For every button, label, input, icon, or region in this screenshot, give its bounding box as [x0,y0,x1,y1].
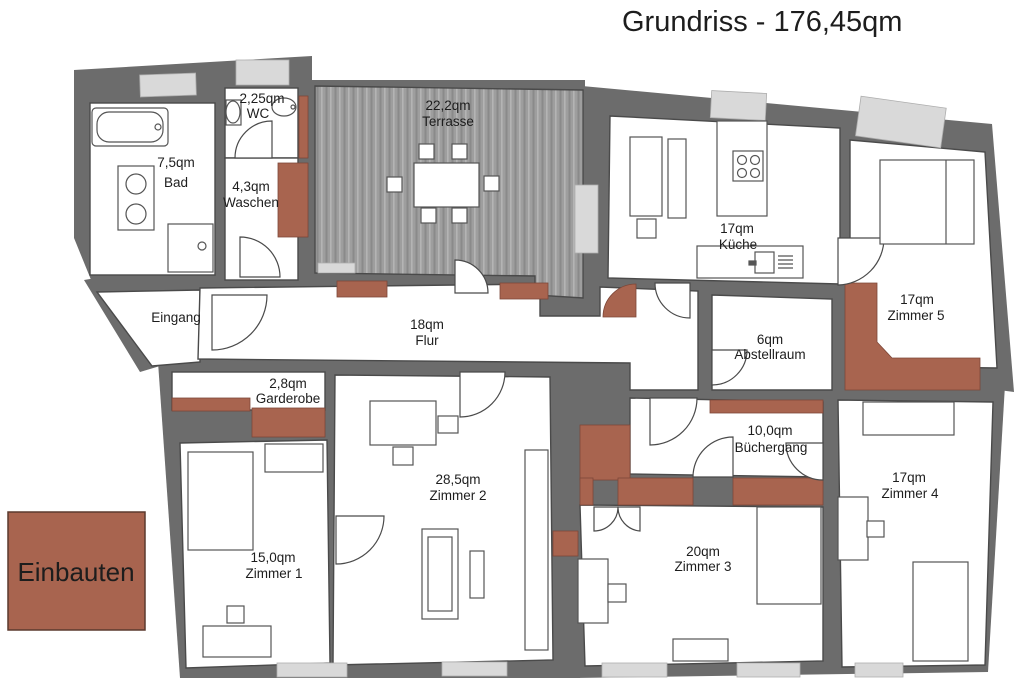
label-wc-name: WC [247,106,270,121]
label-zimmer5-area: 17qm [900,292,934,307]
einbauten-zimmer3-band-c [733,478,823,505]
label-terrasse-name: Terrasse [422,114,474,129]
terrace-chair [419,144,434,159]
label-zimmer1-name: Zimmer 1 [246,566,303,581]
label-wc-area: 2,25qm [239,91,284,106]
zimmer1-chair [227,606,244,623]
label-zimmer3-name: Zimmer 3 [675,559,732,574]
window [277,663,347,677]
window [575,185,598,253]
room-eingang-floor [97,290,200,366]
page-title: Grundriss - 176,45qm [622,6,902,38]
bathtub-faucet [155,124,161,130]
zimmer2-bench [470,551,484,598]
window [140,73,197,97]
einbauten-garderobe-2 [252,408,325,437]
zimmer1-bed [188,452,253,550]
terrace-chair [452,144,467,159]
einbauten-flur-left [337,281,387,297]
zimmer2-wall-cabinet [525,450,548,650]
kueche-faucet [749,261,756,265]
label-bad-name: Bad [164,175,188,190]
window [602,663,667,677]
label-bad-area: 7,5qm [157,155,195,170]
kueche-sink [755,252,774,273]
terrace-table [414,163,479,207]
zimmer4-cabinet [838,497,868,560]
label-zimmer1-area: 15,0qm [250,550,295,565]
label-buechergang-name: Büchergang [735,440,808,455]
kueche-burner [751,156,760,165]
zimmer4-sideboard [863,402,954,435]
window [318,263,355,273]
einbauten-garderobe-1 [172,398,250,411]
einbauten-flur-mid [500,283,548,299]
terrace-chair [387,177,402,192]
zimmer4-cabinet-knob [867,521,884,537]
zimmer3-desk [578,559,608,623]
kueche-burner [738,156,747,165]
zimmer2-chair [438,416,458,433]
floorplan-drawing: Einbauten Grundriss - 176,45qm 7,5qm Bad… [0,0,1025,680]
label-zimmer4-area: 17qm [892,470,926,485]
terrace-chair [452,208,467,223]
floorplan-page: Einbauten Grundriss - 176,45qm 7,5qm Bad… [0,0,1025,680]
einbauten-zimmer3-band-b [618,478,693,505]
einbauten-zimmer3-band-a [580,478,593,505]
zimmer3-bed [757,507,821,604]
window [442,662,507,676]
terrace-chair [421,208,436,223]
label-terrasse-area: 22,2qm [425,98,470,113]
zimmer4-bed [913,562,968,661]
zimmer2-chair [393,447,413,465]
bad-sink-1 [126,174,146,194]
einbauten-waschen [278,163,308,237]
label-zimmer3-area: 20qm [686,544,720,559]
zimmer5-bed [880,160,974,244]
bad-sink-2 [126,204,146,224]
einbauten-buechergang-left [580,425,630,480]
window [855,663,903,677]
legend-einbauten-label: Einbauten [17,557,134,587]
einbauten-zimmer3-left [553,531,578,556]
label-zimmer4-name: Zimmer 4 [882,486,939,501]
wc-toilet-flush [291,105,295,109]
bathtub-inner [97,112,163,142]
kueche-burner [751,169,760,178]
window [236,60,289,85]
zimmer2-piano-inner [428,537,452,611]
label-flur-area: 18qm [410,317,444,332]
label-zimmer2-name: Zimmer 2 [430,488,487,503]
label-buechergang-area: 10,0qm [747,423,792,438]
label-zimmer2-area: 28,5qm [435,472,480,487]
einbauten-buechergang-shelf [710,400,823,413]
zimmer2-desk [370,401,436,445]
zimmer3-chair [608,584,626,602]
label-garderobe-name: Garderobe [256,391,321,406]
window [710,91,766,121]
window [737,663,800,677]
kueche-cabinet-small [637,219,656,238]
bad-cabinet [168,224,213,272]
label-garderobe-area: 2,8qm [269,376,307,391]
zimmer3-sideboard [673,639,728,661]
zimmer1-nightstand [265,444,323,472]
einbauten-wc [299,96,308,158]
label-abstellraum-name: Abstellraum [734,347,805,362]
zimmer1-desk [203,626,271,657]
label-waschen-area: 4,3qm [232,179,270,194]
label-kueche-area: 17qm [720,221,754,236]
label-flur-name: Flur [415,333,439,348]
kueche-cabinet-slim [668,139,686,218]
label-zimmer5-name: Zimmer 5 [888,308,945,323]
label-waschen-name: Waschen [223,195,279,210]
bad-cabinet-knob [198,242,206,250]
wc-sink [226,101,240,123]
kueche-cabinet-tall [630,137,662,216]
label-abstellraum-area: 6qm [757,332,783,347]
label-kueche-name: Küche [719,237,757,252]
kueche-burner [738,169,747,178]
label-eingang: Eingang [151,310,201,325]
terrace-chair [484,176,499,191]
